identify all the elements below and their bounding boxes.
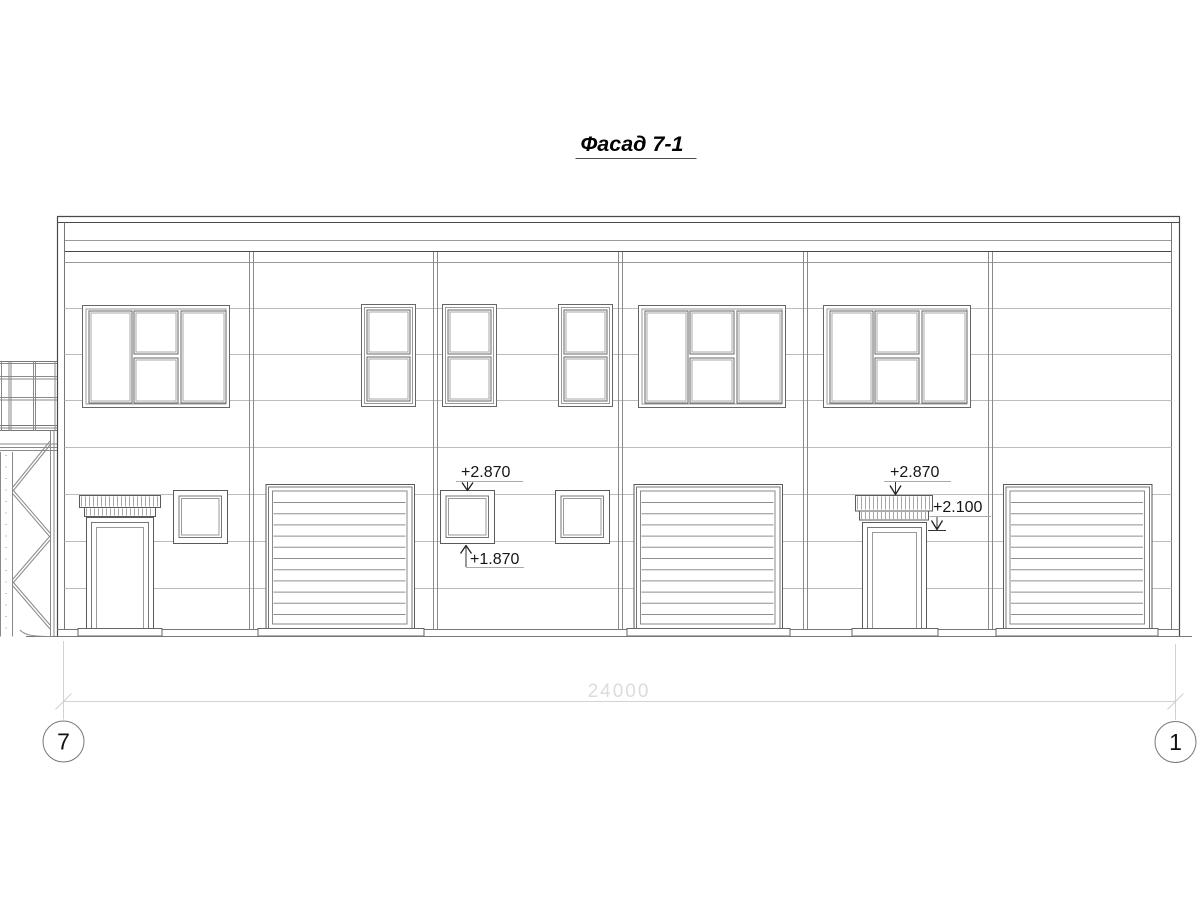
elevation-mark-window-head: +2.870 [456, 464, 523, 491]
threshold-garage-1 [258, 629, 424, 637]
drawing-title: Фасад 7-1 [576, 132, 697, 159]
upper-window-2pane-3 [559, 305, 613, 407]
service-window-3 [556, 491, 610, 544]
dimension-line: 24000 [56, 641, 1184, 720]
facade-drawing-page: Фасад 7-1 [0, 0, 1200, 900]
upper-window-triple-left [83, 306, 230, 408]
threshold-door-left [78, 629, 162, 637]
door-canopy-right [856, 496, 933, 521]
entry-door-left [80, 496, 161, 630]
elevation-mark-canopy-top: +2.870 [884, 464, 951, 495]
annex-stair-structure [0, 362, 57, 637]
annex-ladder [1, 452, 13, 637]
ground-line [20, 629, 1192, 637]
ground-curve [20, 630, 52, 637]
axis-bubble-7: 7 [43, 721, 84, 762]
elevation-mark-window-sill: +1.870 [461, 546, 525, 569]
entry-door-right [856, 496, 933, 630]
garage-door-3 [1004, 485, 1153, 630]
page-title: Фасад 7-1 [581, 132, 684, 156]
service-window-1 [174, 491, 228, 544]
dimension-value: 24000 [588, 681, 651, 702]
upper-window-triple-center [639, 306, 786, 408]
elevation-label: +2.100 [933, 499, 982, 516]
threshold-garage-2 [627, 629, 790, 637]
threshold-garage-3 [996, 629, 1158, 637]
axis-number: 7 [57, 729, 70, 755]
elevation-mark-canopy-underside: +2.100 [928, 499, 991, 531]
elevation-label: +2.870 [461, 464, 510, 481]
annex-x-bracing [13, 431, 54, 637]
axis-bubble-1: 1 [1155, 722, 1196, 763]
service-window-2 [441, 491, 495, 544]
upper-window-2pane-1 [362, 305, 416, 407]
roof-parapet [57, 217, 1180, 252]
upper-window-triple-right [824, 306, 971, 408]
garage-door-1 [266, 485, 415, 630]
facade-drawing-canvas: Фасад 7-1 [0, 0, 1200, 900]
garage-door-2 [634, 485, 783, 630]
upper-window-2pane-2 [443, 305, 497, 407]
annex-railing [0, 362, 57, 451]
upper-windows [83, 305, 971, 408]
axis-number: 1 [1169, 729, 1182, 755]
door-canopy-left [80, 496, 161, 517]
threshold-door-right [852, 629, 938, 637]
elevation-label: +1.870 [470, 551, 519, 568]
elevation-label: +2.870 [890, 464, 939, 481]
